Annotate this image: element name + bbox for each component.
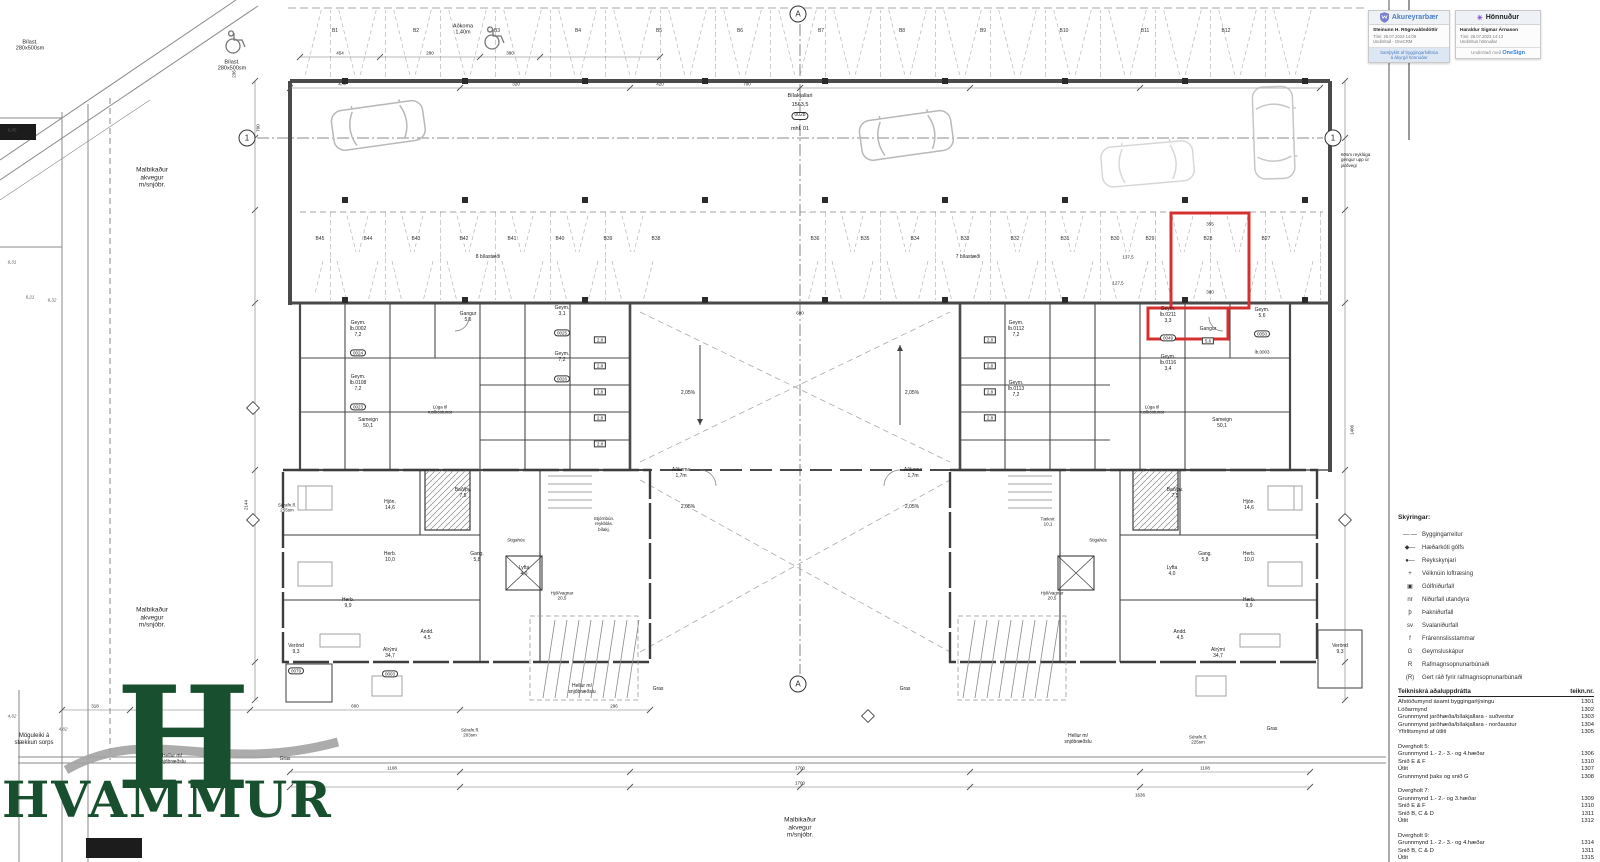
legend-symbol-icon: R bbox=[1398, 662, 1422, 668]
parking-stall-label: B28 bbox=[1204, 237, 1213, 243]
drawing-number: 1306 bbox=[1574, 751, 1594, 759]
plan-label: Möguleiki á stækkun sorps bbox=[14, 733, 53, 747]
parking-stall-label: B43 bbox=[412, 237, 421, 243]
designer-signature-stamp: ✳ Hönnuður Haraldur Sigmar Árnason Tími:… bbox=[1455, 10, 1541, 59]
drawing-number: 1311 bbox=[1574, 848, 1594, 856]
legend-items: —·—Byggingarreitur◆—Hæðarkóti gólfs●—Rey… bbox=[1398, 528, 1594, 684]
parking-stall-label: B7 bbox=[818, 29, 824, 35]
plan-label: 0026 bbox=[554, 375, 570, 382]
drawing-list-title: Teikniskrá aðaluppdrátta bbox=[1398, 688, 1570, 695]
legend-label: Vélknúin loftræsing bbox=[1422, 571, 1473, 577]
parking-stall-label: B5 bbox=[656, 29, 662, 35]
onesign-brand: OneSign bbox=[1502, 50, 1525, 56]
signed-prefix: Undirritað með bbox=[1471, 50, 1501, 55]
plan-label: 5,6 bbox=[1202, 337, 1214, 344]
legend-label: Svalaniðurfall bbox=[1422, 623, 1458, 629]
plan-label: 1108 bbox=[1200, 765, 1210, 770]
plan-label: 280 bbox=[426, 50, 434, 55]
drawing-title: Dvergholt 9: bbox=[1398, 833, 1574, 841]
signature-method: Undirritun hönnuðar bbox=[1460, 39, 1536, 44]
plan-label: Geym. 3,1 bbox=[555, 306, 570, 318]
drawing-title: Lóðarmynd bbox=[1398, 707, 1574, 715]
parking-stall-label: B38 bbox=[652, 237, 661, 243]
parking-stall-label: B35 bbox=[861, 237, 870, 243]
plan-label: Sérafn.fl. 225sm bbox=[1189, 735, 1207, 746]
plan-label: Geym. Íb.0002 7,2 bbox=[350, 321, 367, 339]
plan-label: Hellur m/ snjóbræðslu bbox=[1064, 734, 1091, 746]
plan-label: Gangur bbox=[1200, 327, 1217, 333]
plan-label: 420 bbox=[656, 81, 664, 86]
plan-label: Aðkoma 1,40m bbox=[453, 24, 473, 37]
plan-label: 600 bbox=[351, 703, 359, 708]
drawing-list-row: Yfirlitsmynd af útliti1305 bbox=[1398, 729, 1594, 737]
parking-stall-label: B6 bbox=[737, 29, 743, 35]
parking-stall-label: B11 bbox=[1141, 29, 1150, 35]
drawing-list-row: Snið B, C & D1311 bbox=[1398, 848, 1594, 856]
plan-label: Malbikaður akvegur m/snjóbr. bbox=[136, 607, 168, 630]
plan-label: 6,21 bbox=[26, 294, 35, 299]
legend-symbol-icon: sv bbox=[1398, 623, 1422, 629]
parking-stall-label: B45 bbox=[316, 237, 325, 243]
drawing-list-row: Grunnmynd jarðhæða/bílakjallara - norðau… bbox=[1398, 722, 1594, 730]
drawing-title: Grunnmynd jarðhæða/bílakjallara - norðau… bbox=[1398, 722, 1574, 730]
asterisk-icon: ✳ bbox=[1477, 14, 1483, 22]
plan-label: 700 bbox=[255, 124, 260, 132]
plan-label: Verönd 9,3 bbox=[288, 644, 304, 656]
plan-label: Geym. 7,2 bbox=[555, 352, 570, 364]
drawing-title: Útlit bbox=[1398, 855, 1574, 862]
plan-label: 6,95 bbox=[8, 127, 17, 132]
plan-label: Herb. 10,0 bbox=[1243, 552, 1255, 564]
plan-label: 0003 bbox=[382, 670, 398, 677]
plan-label: 700 bbox=[743, 81, 751, 86]
plan-label: 137,5 bbox=[1122, 254, 1133, 259]
signer-name: Steinunn H. Rögnvaldsdóttir bbox=[1373, 28, 1445, 33]
parking-stall-label: B39 bbox=[604, 237, 613, 243]
drawing-number: 1308 bbox=[1574, 774, 1594, 782]
municipality-approval-stamp: Akureyrarbær Steinunn H. Rögnvaldsdóttir… bbox=[1368, 10, 1450, 63]
akureyri-shield-icon bbox=[1380, 12, 1389, 23]
plan-label: 236 bbox=[231, 70, 236, 78]
drawing-list-row: Grunnmynd jarðhæða/bílakjallara - suðves… bbox=[1398, 714, 1594, 722]
drawing-list-row: Grunnmynd 1.- 2.- 3.- og 4.hæðar1314 bbox=[1398, 840, 1594, 848]
signature-method: Undirritað - OneCRM bbox=[1373, 39, 1445, 44]
plan-label: Lyfta 4,0 bbox=[519, 566, 530, 578]
parking-stall-label: B32 bbox=[1011, 237, 1020, 243]
plan-label: 0023 bbox=[350, 403, 366, 410]
drawing-list-row: Snið E & F1310 bbox=[1398, 803, 1594, 811]
plan-label: 127,5 bbox=[1112, 280, 1123, 285]
legend-item: —·—Byggingarreitur bbox=[1398, 528, 1594, 541]
drawing-number: 1305 bbox=[1574, 729, 1594, 737]
plan-label: Hjón. 14,6 bbox=[1243, 500, 1255, 512]
stamp-body: Haraldur Sigmar Árnason Tími: 26.07.2023… bbox=[1456, 25, 1540, 47]
plan-label: 1563,5 bbox=[792, 102, 809, 108]
plan-label: 2,05% bbox=[681, 505, 695, 511]
drawing-number: 1302 bbox=[1574, 707, 1594, 715]
plan-label: Geym. 5,6 bbox=[1255, 308, 1270, 320]
drawing-title: Snið B, C & D bbox=[1398, 848, 1574, 856]
plan-label: 2,05% bbox=[905, 391, 919, 397]
plan-label: 2,8 bbox=[594, 440, 606, 447]
legend-label: Gólfniðurfall bbox=[1422, 584, 1454, 590]
drawing-number: 1311 bbox=[1574, 811, 1594, 819]
legend-item: ●—Reykskynjari bbox=[1398, 554, 1594, 567]
plan-label: 296 bbox=[610, 703, 618, 708]
signer-name: Haraldur Sigmar Árnason bbox=[1460, 28, 1536, 33]
plan-label: mhl. 01 bbox=[791, 126, 809, 132]
plan-label: Aðkoma 1,7m bbox=[672, 468, 690, 480]
legend-label: Frárennslisstammar bbox=[1422, 636, 1475, 642]
plan-label: 7 bílastæði bbox=[956, 255, 980, 261]
drawing-list-rows: Afstöðumynd ásamt byggingarlýsingu1301Ló… bbox=[1398, 699, 1594, 862]
legend-symbol-icon: ◆— bbox=[1398, 544, 1422, 551]
plan-label: 4,82 bbox=[59, 726, 68, 731]
parking-stall-label: B29 bbox=[1146, 237, 1155, 243]
parking-stall-label: B3 bbox=[494, 29, 500, 35]
plan-label: 6,31 bbox=[8, 259, 17, 264]
drawing-list-row: Útlit1307 bbox=[1398, 766, 1594, 774]
plan-label: Sameign 50,1 bbox=[358, 418, 378, 430]
parking-stall-label: B27 bbox=[1262, 237, 1271, 243]
drawing-title: Dvergholt 7: bbox=[1398, 788, 1574, 796]
plan-label: 0050 bbox=[1254, 330, 1270, 337]
legend-label: Byggingarreitur bbox=[1422, 532, 1463, 538]
plan-label: Sameign 50,1 bbox=[1212, 418, 1232, 430]
plan-label: Stigahús bbox=[1089, 537, 1107, 542]
plan-label: Hellur m/ snjóbræðslu bbox=[568, 684, 595, 696]
parking-stall-label: B44 bbox=[364, 237, 373, 243]
drawing-number bbox=[1574, 788, 1594, 796]
axis-marker: 1 bbox=[239, 130, 256, 147]
plan-label: Tæknir. 10,1 bbox=[1040, 517, 1055, 528]
plan-label: 318 bbox=[91, 703, 99, 708]
legend-item: ◆—Hæðarkóti gólfs bbox=[1398, 541, 1594, 554]
legend-item: GGeymsluskápur bbox=[1398, 645, 1594, 658]
plan-label: Stigahús bbox=[507, 537, 525, 542]
legend-label: Geymsluskápur bbox=[1422, 649, 1464, 655]
legend-symbol-icon: (R) bbox=[1398, 675, 1422, 681]
legend-label: Reykskynjari bbox=[1422, 558, 1456, 564]
drawing-title: Afstöðumynd ásamt byggingarlýsingu bbox=[1398, 699, 1574, 707]
legend-item: (R)Gert ráð fyrir rafmagnsopnunarbúnaði bbox=[1398, 671, 1594, 684]
plan-label: 2,8 bbox=[984, 336, 996, 343]
plan-label: Herb. 9,9 bbox=[342, 598, 354, 610]
plan-label: Íb.0003 bbox=[1254, 349, 1269, 354]
parking-stall-label: B42 bbox=[460, 237, 469, 243]
plan-label: Herb. 10,0 bbox=[384, 552, 396, 564]
plan-label: 600 bbox=[796, 310, 804, 315]
parking-stall-label: B10 bbox=[1060, 29, 1069, 35]
parking-stall-label: B33 bbox=[961, 237, 970, 243]
parking-stall-label: B9 bbox=[980, 29, 986, 35]
drawing-title: Grunnmynd 1.- 2.- 3.- og 4.hæðar bbox=[1398, 751, 1574, 759]
plan-label: 2144 bbox=[243, 500, 248, 510]
plan-label: 454 bbox=[336, 50, 344, 55]
onesign-note: Undirritað með OneSign bbox=[1456, 47, 1540, 58]
drawing-title: Snið B, C & D bbox=[1398, 811, 1574, 819]
legend-symbol-icon: ▣ bbox=[1398, 583, 1422, 590]
legend-symbol-icon: nr bbox=[1398, 597, 1422, 603]
plan-label: 0079 bbox=[288, 667, 304, 674]
stamp-body: Steinunn H. Rögnvaldsdóttir Tími: 26.07.… bbox=[1369, 25, 1449, 47]
drawing-number bbox=[1574, 833, 1594, 841]
plan-label: Alrými 34,7 bbox=[383, 648, 397, 660]
axis-marker: A bbox=[790, 676, 807, 693]
plan-label: 2,05% bbox=[681, 391, 695, 397]
plan-label: Sérafn.fl. 255sm bbox=[278, 503, 296, 514]
legend-item: ▣Gólfniðurfall bbox=[1398, 580, 1594, 593]
plan-label: 0049 bbox=[1160, 334, 1176, 341]
drawing-title: Snið E & F bbox=[1398, 759, 1574, 767]
plan-label: Gang. 5,8 bbox=[1198, 552, 1212, 564]
drawing-list-row: Dvergholt 7: bbox=[1398, 788, 1594, 796]
legend-symbol-icon: + bbox=[1398, 571, 1422, 577]
legend-label: Niðurfall utandyra bbox=[1422, 597, 1469, 603]
drawing-number: 1303 bbox=[1574, 714, 1594, 722]
drawing-list-row: Grunnmynd 1.- 2.- og 3.hæðar1309 bbox=[1398, 796, 1594, 804]
legend-label: Þakniðurfall bbox=[1422, 610, 1453, 616]
plan-label: Gang. 5,8 bbox=[470, 552, 484, 564]
plan-label: Verönd 9,3 bbox=[1332, 644, 1348, 656]
plan-label: Hjón. 14,6 bbox=[384, 500, 396, 512]
floor-plan-sheet: Malbikaður akvegur m/snjóbr.Malbikaður a… bbox=[0, 0, 1600, 862]
parking-stall-label: B31 bbox=[1061, 237, 1070, 243]
plan-label: Malbikaður akvegur m/snjóbr. bbox=[136, 167, 168, 190]
drawing-number-header: teikn.nr. bbox=[1570, 688, 1594, 695]
plan-label: 2,8 bbox=[984, 362, 996, 369]
parking-stall-label: B36 bbox=[811, 237, 820, 243]
legend-symbol-icon: G bbox=[1398, 649, 1422, 655]
drawing-number bbox=[1574, 744, 1594, 752]
plan-label: Lúga til ruslköstunar bbox=[428, 405, 453, 416]
plan-label: 2,8 bbox=[594, 362, 606, 369]
plan-label: Malbikaður akvegur m/snjóbr. bbox=[784, 817, 816, 840]
legend-symbol-icon: ●— bbox=[1398, 558, 1422, 564]
drawing-list-row: Grunnmynd 1.- 2.- 3.- og 4.hæðar1306 bbox=[1398, 751, 1594, 759]
plan-label: 1700 bbox=[795, 780, 805, 785]
drawing-number: 1309 bbox=[1574, 796, 1594, 804]
legend-label: Rafmagnsopnunarbúnaði bbox=[1422, 662, 1489, 668]
plan-label: Geym. Íb.0108 7,2 bbox=[350, 375, 367, 393]
legend-symbol-icon: f bbox=[1398, 636, 1422, 642]
plan-label: Geym. Íb.0116 3,4 bbox=[1160, 355, 1176, 373]
parking-stall-label: B30 bbox=[1111, 237, 1120, 243]
legend-item: svSvalaniðurfall bbox=[1398, 619, 1594, 632]
drawing-number: 1304 bbox=[1574, 722, 1594, 730]
hvammur-logo-wordmark: HVAMMUR bbox=[2, 770, 333, 829]
plan-label: 2,05% bbox=[905, 505, 919, 511]
plan-label: Andd. 4,5 bbox=[420, 630, 433, 642]
drawing-title: Grunnmynd 1.- 2.- 3.- og 4.hæðar bbox=[1398, 840, 1574, 848]
legend-item: nrNiðurfall utandyra bbox=[1398, 593, 1594, 606]
axis-marker: A bbox=[790, 6, 807, 23]
drawing-list-panel: Teikniskrá aðaluppdrátta teikn.nr. Afstö… bbox=[1398, 688, 1594, 862]
drawing-title: Grunnmynd jarðhæða/bílakjallara - suðves… bbox=[1398, 714, 1574, 722]
plan-label: Bílakjallari bbox=[787, 93, 812, 99]
parking-stall-label: B8 bbox=[899, 29, 905, 35]
plan-label: 8 bílastæði bbox=[476, 255, 500, 261]
legend-item: +Vélknúin loftræsing bbox=[1398, 567, 1594, 580]
drawing-title: Grunnmynd þaks og snið G bbox=[1398, 774, 1574, 782]
drawing-title: Yfirlitsmynd af útliti bbox=[1398, 729, 1574, 737]
drawing-number: 1307 bbox=[1574, 766, 1594, 774]
parking-stall-label: B34 bbox=[911, 237, 920, 243]
drawing-list-row: Afstöðumynd ásamt byggingarlýsingu1301 bbox=[1398, 699, 1594, 707]
plan-label: Gras bbox=[1267, 727, 1278, 733]
drawing-number: 1312 bbox=[1574, 818, 1594, 826]
plan-label: Bílast. 280x500sm bbox=[16, 40, 44, 53]
plan-label: Gangur 5,6 bbox=[460, 312, 477, 324]
parking-stall-label: B41 bbox=[508, 237, 517, 243]
legend-item: þÞakniðurfall bbox=[1398, 606, 1594, 619]
plan-label: 1700 bbox=[795, 765, 805, 770]
drawing-number: 1310 bbox=[1574, 759, 1594, 767]
drawing-number: 1315 bbox=[1574, 855, 1594, 862]
legend-title: Skýringar: bbox=[1398, 514, 1594, 521]
plan-label: 1406 bbox=[1349, 425, 1354, 435]
plan-label: Alrými 34,7 bbox=[1211, 648, 1225, 660]
drawing-title: Grunnmynd 1.- 2.- og 3.hæðar bbox=[1398, 796, 1574, 804]
drawing-list-row: Útlit1315 bbox=[1398, 855, 1594, 862]
drawing-number: 1310 bbox=[1574, 803, 1594, 811]
plan-label: Bað/þv. 7,5 bbox=[455, 488, 472, 500]
drawing-list-row: Útlit1312 bbox=[1398, 818, 1594, 826]
stamp-title: Akureyrarbær bbox=[1392, 14, 1438, 21]
plan-label: Geym. Íb.0112 7,2 bbox=[1008, 321, 1024, 339]
legend-panel: Skýringar: —·—Byggingarreitur◆—Hæðarkóti… bbox=[1398, 514, 1594, 684]
plan-label: 320 bbox=[512, 81, 520, 86]
plan-label: Hjól/vagnar 20,5 bbox=[551, 591, 574, 602]
drawing-list-header: Teikniskrá aðaluppdrátta teikn.nr. bbox=[1398, 688, 1594, 697]
drawing-title: Útlit bbox=[1398, 818, 1574, 826]
parking-stall-label: B40 bbox=[556, 237, 565, 243]
plan-label: Aðkoma 1,7m bbox=[904, 468, 922, 480]
plan-label: 1636 bbox=[1135, 792, 1145, 797]
parking-stall-label: B12 bbox=[1222, 29, 1231, 35]
plan-label: Andd. 4,5 bbox=[1173, 630, 1186, 642]
plan-label: Gras bbox=[280, 757, 291, 763]
legend-item: RRafmagnsopnunarbúnaði bbox=[1398, 658, 1594, 671]
drawing-title: Dvergholt 5: bbox=[1398, 744, 1574, 752]
plan-label: 0028 bbox=[791, 112, 808, 120]
parking-stall-label: B4 bbox=[575, 29, 581, 35]
drawing-title: Útlit bbox=[1398, 766, 1574, 774]
plan-label: 2,8 bbox=[984, 388, 996, 395]
plan-label: Sérafn.fl. 203sm bbox=[461, 728, 479, 739]
plan-label: Gras bbox=[900, 687, 911, 693]
plan-label: Geym. Íb.0211 3,3 bbox=[1160, 307, 1176, 325]
drawing-list-row: Dvergholt 5: bbox=[1398, 744, 1594, 752]
plan-label: 1108 bbox=[387, 765, 397, 770]
plan-label: 380 bbox=[506, 50, 514, 55]
legend-symbol-icon: —·— bbox=[1398, 532, 1422, 538]
drawing-list-row: Snið B, C & D1311 bbox=[1398, 811, 1594, 819]
approval-line: á ábyrgð hönnuðar bbox=[1371, 55, 1447, 60]
plan-label: 6,32 bbox=[48, 297, 57, 302]
drawing-title: Snið E & F bbox=[1398, 803, 1574, 811]
drawing-list-row: Lóðarmynd1302 bbox=[1398, 707, 1594, 715]
plan-label: 2,8 bbox=[594, 336, 606, 343]
plan-label: Hjól/vagnar 20,5 bbox=[1041, 591, 1064, 602]
plan-label: 355 bbox=[1206, 221, 1214, 226]
plan-label: 2,8 bbox=[594, 388, 606, 395]
plan-label: 2,8 bbox=[594, 414, 606, 421]
parking-stall-label: B2 bbox=[413, 29, 419, 35]
plan-label: Geym. Íb.0113 7,2 bbox=[1008, 381, 1024, 399]
legend-item: fFrárennslisstammar bbox=[1398, 632, 1594, 645]
axis-marker: 1 bbox=[1325, 130, 1342, 147]
plan-label: Herb. 9,9 bbox=[1243, 598, 1255, 610]
drawing-list-row: Dvergholt 9: bbox=[1398, 833, 1594, 841]
plan-label: 380 bbox=[1206, 289, 1214, 294]
plan-label: 474 bbox=[338, 81, 346, 86]
plan-label: Lyfta 4,0 bbox=[1167, 566, 1178, 578]
parking-stall-label: B1 bbox=[332, 29, 338, 35]
plan-label: 2,8 bbox=[984, 414, 996, 421]
legend-label: Gert ráð fyrir rafmagnsopnunarbúnaði bbox=[1422, 675, 1522, 681]
plan-label: 0024 bbox=[350, 349, 366, 356]
stamp-header: ✳ Hönnuður bbox=[1456, 11, 1540, 25]
drawing-number: 1301 bbox=[1574, 699, 1594, 707]
drawing-list-row: Snið E & F1310 bbox=[1398, 759, 1594, 767]
plan-label: 0025 bbox=[554, 329, 570, 336]
plan-label: 60sm reyklúga gengur upp úr jarðvegi bbox=[1341, 152, 1370, 168]
plan-label: Lúga til ruslköstunar bbox=[1140, 405, 1165, 416]
legend-symbol-icon: þ bbox=[1398, 610, 1422, 616]
drawing-number: 1314 bbox=[1574, 840, 1594, 848]
stamp-title: Hönnuður bbox=[1486, 14, 1519, 21]
stamp-header: Akureyrarbær bbox=[1369, 11, 1449, 25]
plan-label: Gras bbox=[653, 687, 664, 693]
plan-label: 4,62 bbox=[8, 713, 17, 718]
plan-label: Bað/þv. 7,5 bbox=[1167, 488, 1184, 500]
legend-label: Hæðarkóti gólfs bbox=[1422, 545, 1464, 551]
plan-label: Stjórnbún. reykblás. bílakj. bbox=[594, 516, 615, 532]
approval-note: Samþykkt af byggingarfulltrúa á ábyrgð h… bbox=[1369, 47, 1449, 62]
drawing-list-row: Grunnmynd þaks og snið G1308 bbox=[1398, 774, 1594, 782]
